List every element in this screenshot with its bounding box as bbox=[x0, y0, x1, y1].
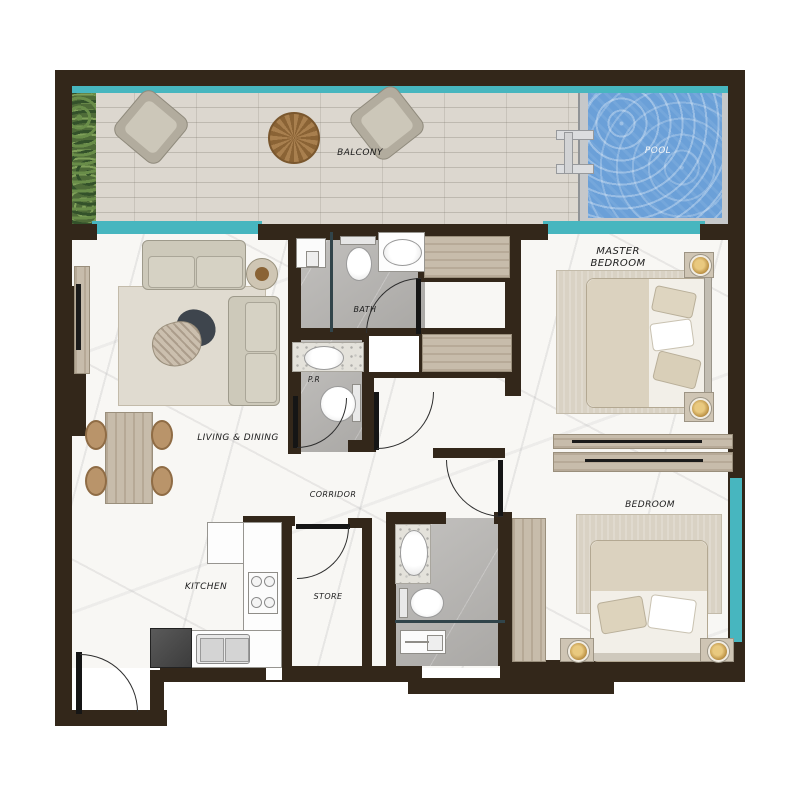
bed-duvet bbox=[587, 279, 649, 407]
sink-basin bbox=[225, 638, 249, 662]
wall-store-right bbox=[362, 518, 372, 666]
shower-head bbox=[427, 635, 443, 651]
sink-basin bbox=[200, 638, 224, 662]
bedroom-wardrobe-handle bbox=[585, 459, 703, 462]
bedroom-wardrobe-top bbox=[553, 452, 733, 472]
kitchen-sink bbox=[196, 634, 250, 664]
bedroom-window bbox=[730, 478, 742, 642]
living-side-table bbox=[246, 258, 278, 290]
dining-chair bbox=[85, 466, 107, 496]
bed-pillow bbox=[651, 285, 697, 319]
bath-toilet-bowl bbox=[346, 247, 372, 281]
master-bed bbox=[586, 278, 710, 408]
bath-toilet-tank bbox=[340, 236, 376, 245]
service-shaft bbox=[369, 336, 419, 372]
bath2-toilet-bowl bbox=[410, 588, 444, 618]
wall-bath2-top-a bbox=[386, 512, 446, 524]
wall-bottom-kitchen bbox=[160, 666, 422, 682]
cooktop bbox=[248, 572, 278, 614]
bed-pillow bbox=[647, 594, 697, 634]
label-pool: POOL bbox=[630, 145, 686, 157]
dining-chair bbox=[151, 420, 173, 450]
bedroom-wardrobe-left bbox=[512, 518, 546, 662]
wall-left bbox=[55, 70, 72, 726]
tv bbox=[76, 284, 81, 350]
balcony-planter bbox=[72, 90, 96, 228]
hall-closet bbox=[424, 236, 510, 278]
master-dresser-handle bbox=[572, 440, 702, 443]
label-powder-room: P.R bbox=[300, 374, 328, 386]
armchair-cushion bbox=[123, 99, 179, 155]
armchair-cushion bbox=[359, 95, 415, 151]
bed-pillow bbox=[649, 318, 694, 352]
bed-pillow bbox=[597, 595, 648, 635]
sofa-cushion bbox=[245, 302, 277, 352]
bedroom-lamp bbox=[708, 641, 729, 662]
bath2-toilet-tank bbox=[399, 588, 408, 618]
bedroom-bed bbox=[590, 540, 708, 662]
balcony-side-table bbox=[268, 112, 320, 164]
bath2-shower-fixture bbox=[400, 630, 446, 654]
label-store: STORE bbox=[306, 591, 350, 603]
pr-basin bbox=[304, 346, 344, 370]
sofa-vertical bbox=[228, 296, 280, 406]
pool-ladder-rail bbox=[556, 164, 594, 174]
bath2-shower-glass bbox=[395, 620, 505, 623]
wall-bath-bottom bbox=[288, 328, 370, 340]
dining-table bbox=[105, 412, 153, 504]
label-living-dining: LIVING & DINING bbox=[188, 432, 288, 444]
bed-headboard bbox=[591, 653, 707, 661]
wall-bath2-right bbox=[498, 512, 512, 666]
pool-ladder-post bbox=[564, 132, 573, 174]
master-bedroom-window bbox=[543, 221, 705, 234]
bed-pillow bbox=[652, 350, 702, 390]
sofa-cushion bbox=[245, 353, 277, 403]
wall-balcony-a bbox=[55, 224, 97, 240]
pool-ladder-rail bbox=[556, 130, 594, 140]
label-corridor: CORRIDOR bbox=[303, 489, 363, 501]
wall-niche bbox=[266, 668, 282, 680]
bath2-basin bbox=[400, 530, 428, 576]
label-bath: BATH bbox=[346, 304, 384, 316]
wall-room-divider bbox=[433, 448, 505, 458]
wall-balcony-c bbox=[700, 224, 745, 240]
sofa-cushion bbox=[148, 256, 195, 288]
bed-duvet bbox=[591, 541, 707, 591]
sofa-horizontal bbox=[142, 240, 246, 290]
label-kitchen: KITCHEN bbox=[178, 581, 234, 593]
sofa-cushion bbox=[196, 256, 243, 288]
kitchen-appliance bbox=[150, 628, 192, 668]
wall-pr-bottom-stub bbox=[348, 440, 376, 452]
floor-plan: BALCONY POOL MASTER BEDROOM BATH P.R LIV… bbox=[0, 0, 800, 800]
shower-drain bbox=[306, 251, 319, 267]
master-lamp bbox=[690, 255, 711, 276]
wall-top bbox=[55, 70, 745, 86]
master-lamp bbox=[690, 398, 711, 419]
bath-sink-basin bbox=[383, 239, 422, 266]
living-sliding-door bbox=[92, 221, 262, 234]
label-bedroom: BEDROOM bbox=[620, 499, 680, 511]
shower-rail bbox=[405, 641, 429, 643]
bath-shower-glass bbox=[330, 232, 333, 332]
wall-bottom-bedroom bbox=[500, 660, 745, 682]
bedroom-lamp bbox=[568, 641, 589, 662]
pool-ladder-icon bbox=[556, 130, 596, 174]
bath-shower-tray bbox=[296, 238, 326, 268]
dining-chair bbox=[85, 420, 107, 450]
plant-pot bbox=[255, 267, 269, 281]
hall-closet-2 bbox=[422, 334, 512, 372]
dining-chair bbox=[151, 466, 173, 496]
label-balcony: BALCONY bbox=[318, 147, 402, 159]
label-master-bedroom: MASTER BEDROOM bbox=[578, 246, 658, 270]
